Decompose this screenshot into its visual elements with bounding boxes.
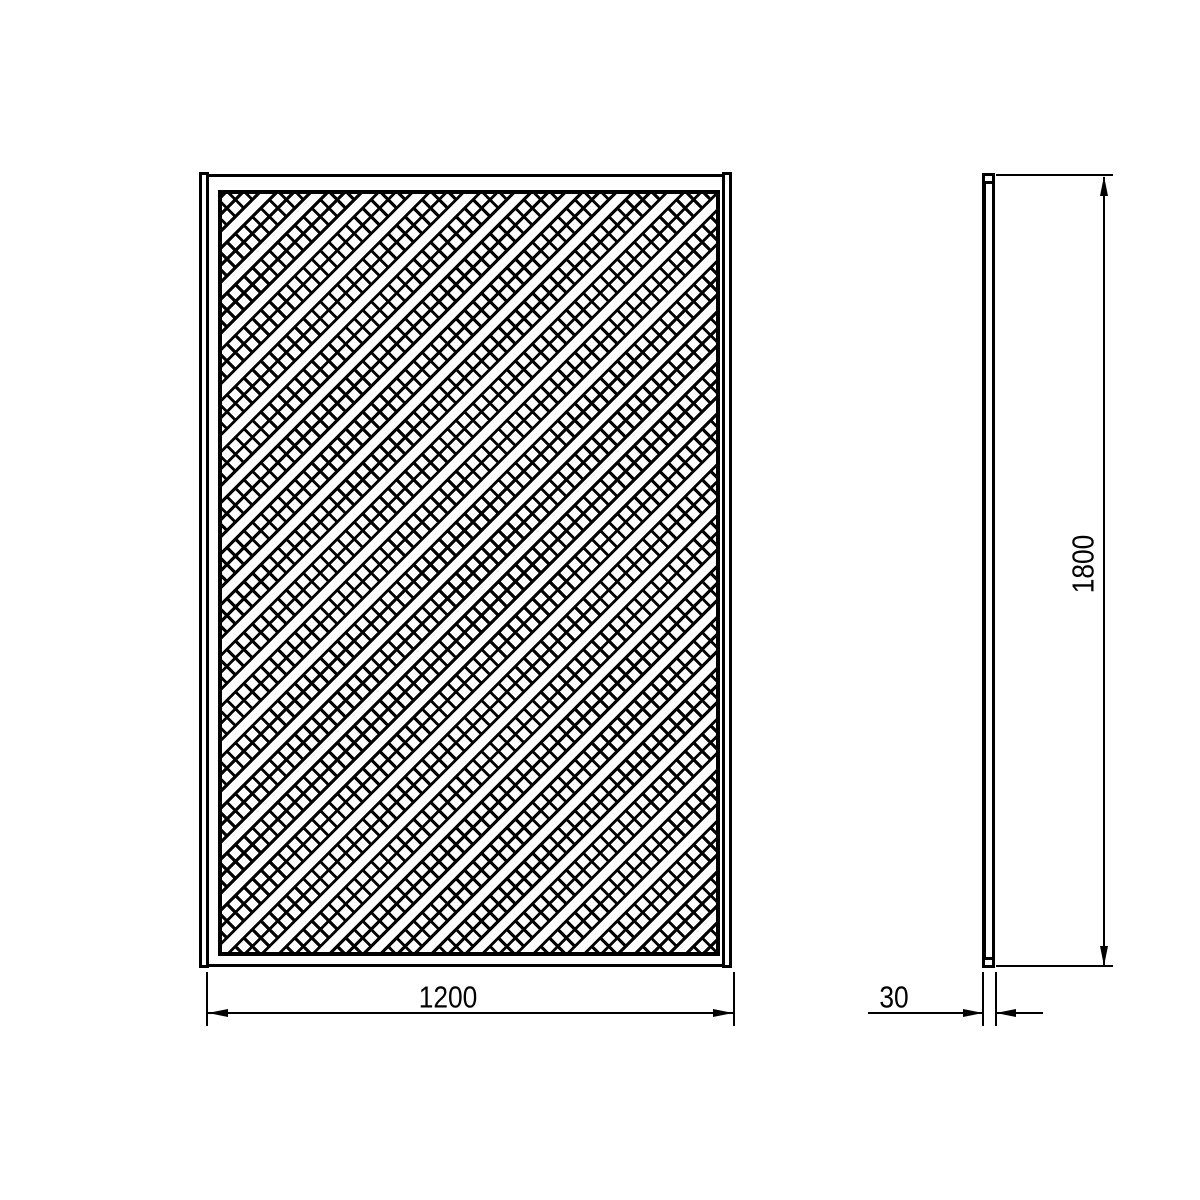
panel-bottom-rail-edge	[209, 964, 723, 967]
arrow-right-icon	[963, 1009, 983, 1017]
width-extension-line-left	[206, 972, 208, 1026]
left-side-batten	[199, 172, 209, 968]
lattice-frame	[218, 190, 720, 956]
height-extension-line-top	[996, 174, 1113, 176]
width-dimension-label: 1200	[419, 982, 478, 1013]
arrow-right-icon	[713, 1009, 733, 1017]
width-extension-line-right	[733, 972, 735, 1026]
panel-side-profile	[982, 173, 995, 968]
height-dimension-line	[1103, 177, 1105, 965]
arrow-down-icon	[1100, 946, 1108, 966]
arrow-left-icon	[208, 1009, 228, 1017]
panel-top-rail-edge	[209, 174, 723, 177]
thickness-extension-line-left	[982, 972, 984, 1026]
right-side-batten	[722, 172, 732, 968]
arrow-left-icon	[996, 1009, 1016, 1017]
thickness-dimension-label: 30	[879, 982, 908, 1013]
side-profile-top-cap	[982, 173, 995, 184]
height-dimension-label: 1800	[1068, 535, 1099, 594]
side-profile-bottom-cap	[982, 957, 995, 968]
thickness-extension-line-right	[995, 972, 997, 1026]
height-extension-line-bottom	[996, 965, 1113, 967]
drawing-canvas: 1200 1800 30	[0, 0, 1200, 1200]
diagonal-lattice-pattern	[222, 194, 716, 952]
arrow-up-icon	[1100, 176, 1108, 196]
